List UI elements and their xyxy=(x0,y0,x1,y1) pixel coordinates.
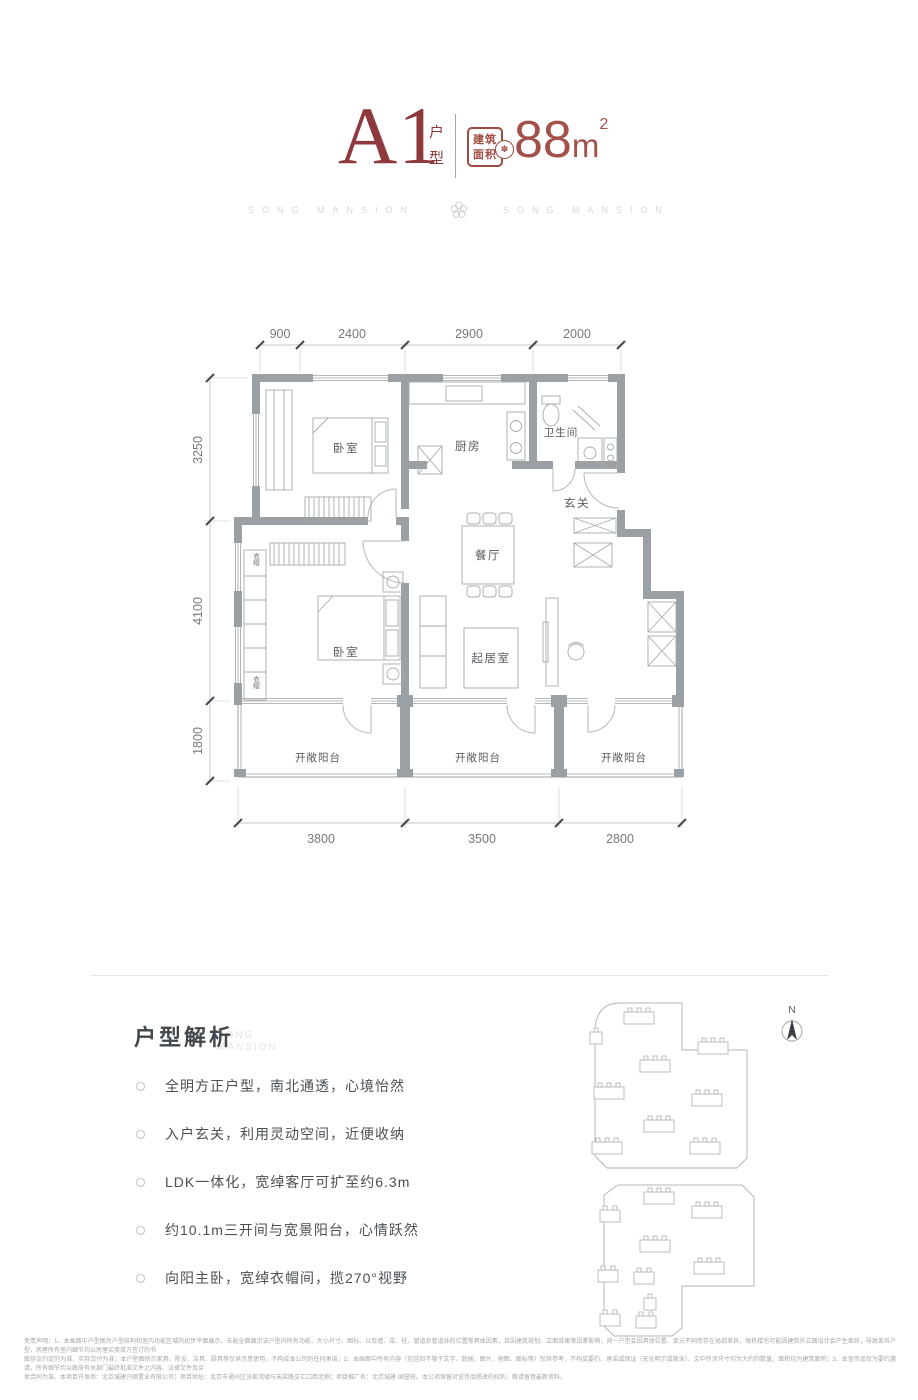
room-label-balcony3: 开敞阳台 xyxy=(601,751,647,764)
bullet-dot-icon xyxy=(136,1130,145,1139)
room-label-living: 起居室 xyxy=(472,651,511,665)
furniture xyxy=(244,382,676,700)
dimension-bottom: 3800 3500 2800 xyxy=(234,787,686,846)
unit-code: A1 xyxy=(338,92,440,180)
bullet-dot-icon xyxy=(136,1082,145,1091)
area-superscript: 2 xyxy=(599,116,608,133)
bullet-dot-icon xyxy=(136,1274,145,1283)
north-arrow-icon: N xyxy=(782,1005,802,1041)
dim-left-2: 4100 xyxy=(191,597,205,625)
watermark-row: SONG MANSION SONG MANSION xyxy=(0,200,918,220)
walls xyxy=(234,374,684,777)
parcel-north xyxy=(590,1003,747,1168)
dimension-left: 3250 4100 1800 xyxy=(191,374,248,785)
room-label-balcony1: 开敞阳台 xyxy=(295,751,341,764)
section-divider xyxy=(90,975,828,976)
room-label-bath: 卫生间 xyxy=(544,426,579,439)
dim-top-1: 900 xyxy=(270,327,291,341)
area-seal-icon: ✽ xyxy=(495,140,514,159)
room-label-balcony2: 开敞阳台 xyxy=(455,751,501,764)
room-label-dining: 餐厅 xyxy=(475,548,501,562)
dim-top-4: 2000 xyxy=(563,327,591,341)
dim-bottom-3: 2800 xyxy=(606,832,634,846)
closet-label-top: 衣帽 xyxy=(252,552,260,568)
dim-left-1: 3250 xyxy=(191,436,205,464)
right-closet xyxy=(648,602,676,666)
dim-left-3: 1800 xyxy=(191,727,205,755)
list-item: 全明方正户型，南北通透，心境怡然 xyxy=(136,1062,496,1110)
analysis-bullets: 全明方正户型，南北通透，心境怡然 入户玄关，利用灵动空间，近便收纳 LDK一体化… xyxy=(136,1062,496,1302)
room-label-bedroom1: 卧室 xyxy=(333,441,359,455)
dim-bottom-1: 3800 xyxy=(307,832,335,846)
windows xyxy=(236,376,673,707)
analysis-title: 户型解析 xyxy=(134,1020,234,1052)
area-unit: m xyxy=(572,127,600,164)
flower-icon xyxy=(449,200,469,220)
floor-plan: 900 2400 2900 2000 3250 4100 1800 3800 3… xyxy=(178,300,718,868)
dim-top-3: 2900 xyxy=(455,327,483,341)
bullet-dot-icon xyxy=(136,1178,145,1187)
watermark-right: SONG MANSION xyxy=(503,205,670,215)
dim-top-2: 2400 xyxy=(338,327,366,341)
balcony-outline xyxy=(238,705,682,777)
list-item: 约10.1m三开间与宽景阳台，心情跃然 xyxy=(136,1206,496,1254)
area-figure: 88m2 xyxy=(514,110,608,170)
dim-bottom-2: 3500 xyxy=(468,832,496,846)
list-item: 入户玄关，利用灵动空间，近便收纳 xyxy=(136,1110,496,1158)
closet-label-bottom: 衣帽 xyxy=(252,675,260,691)
room-label-kitchen: 厨房 xyxy=(455,440,481,453)
room-label-bedroom2: 卧室 xyxy=(333,645,359,659)
list-item: 向阳主卧，宽绰衣帽间，揽270°视野 xyxy=(136,1254,496,1302)
area-value: 88 xyxy=(514,111,572,169)
disclaimer: 免责声明：1、本画面中户型图为户型结构和室内功能区域的初步平面展示，未能全面展示… xyxy=(24,1338,896,1383)
dimension-top: 900 2400 2900 2000 xyxy=(256,327,625,372)
header-divider xyxy=(455,114,456,178)
highlighted-building xyxy=(644,1188,674,1204)
watermark-left: SONG MANSION xyxy=(248,205,415,215)
bullet-dot-icon xyxy=(136,1226,145,1235)
wardrobe-hatch-bedroom2 xyxy=(270,543,345,565)
entry-cabinets xyxy=(574,518,616,567)
list-item: LDK一体化，宽绰客厅可扩至约6.3m xyxy=(136,1158,496,1206)
brochure-page: { "header": { "unit_code": "A1", "unit_l… xyxy=(0,0,918,1400)
site-plan: N xyxy=(552,988,832,1360)
room-label-entry: 玄关 xyxy=(564,496,590,510)
parcel-south xyxy=(598,1185,754,1336)
unit-type-label: 户型 xyxy=(429,120,446,172)
svg-text:N: N xyxy=(788,1005,795,1016)
flue-box xyxy=(418,446,442,474)
